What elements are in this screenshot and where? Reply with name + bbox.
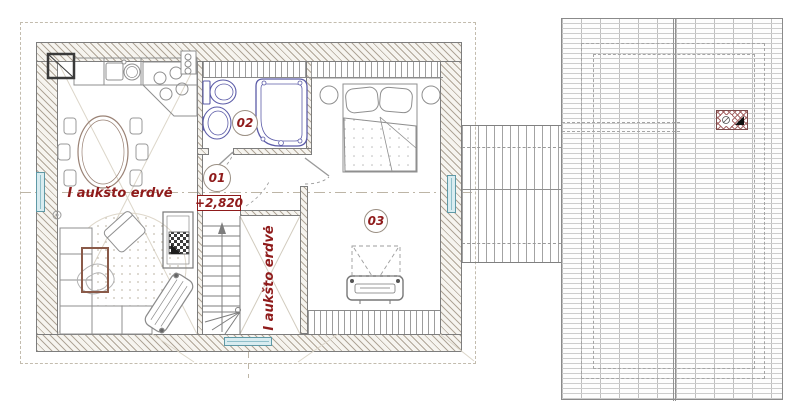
elevation-value: +2,820 — [195, 196, 243, 210]
boiler — [181, 51, 196, 74]
nightstand-right — [422, 86, 440, 104]
room-tag-hall-number: 01 — [209, 171, 226, 185]
dining-table — [78, 116, 128, 188]
roof-dash-mid-a — [562, 122, 680, 123]
door-bedroom — [246, 158, 329, 206]
room-tag-hall: 01 — [203, 164, 231, 192]
drawing-canvas: I aukšto erdvė I aukšto erdvė 01 02 03 +… — [0, 0, 800, 418]
staircase — [203, 216, 241, 334]
double-bed — [343, 84, 417, 172]
dining-chairs — [58, 118, 148, 186]
washbasin — [203, 107, 231, 139]
corner-bathtub — [256, 79, 307, 146]
room-tag-bathroom-number: 02 — [237, 116, 254, 130]
fridge — [48, 54, 74, 78]
terrace-deck — [462, 125, 561, 263]
room-tag-bedroom: 03 — [364, 209, 388, 233]
chimney-marks — [717, 111, 749, 131]
roof-plan — [561, 18, 783, 400]
nightstand-left — [320, 86, 338, 104]
chimney — [716, 110, 748, 130]
floor-marker — [53, 211, 61, 219]
roof-dash-mid-b — [562, 131, 680, 132]
toilet — [203, 80, 236, 104]
void-label-living: I aukšto erdvė — [45, 186, 195, 202]
void-label-stairwell: I aukšto erdvė — [262, 223, 278, 333]
elevation-mark: +2,820 — [197, 195, 241, 211]
kitchen-sink — [106, 60, 140, 80]
wardrobe-projection — [352, 246, 400, 276]
dresser — [347, 276, 403, 304]
room-tag-bedroom-number: 03 — [368, 214, 385, 228]
roof-wall-projection-inner — [593, 54, 755, 369]
room-tag-bathroom: 02 — [232, 110, 258, 136]
